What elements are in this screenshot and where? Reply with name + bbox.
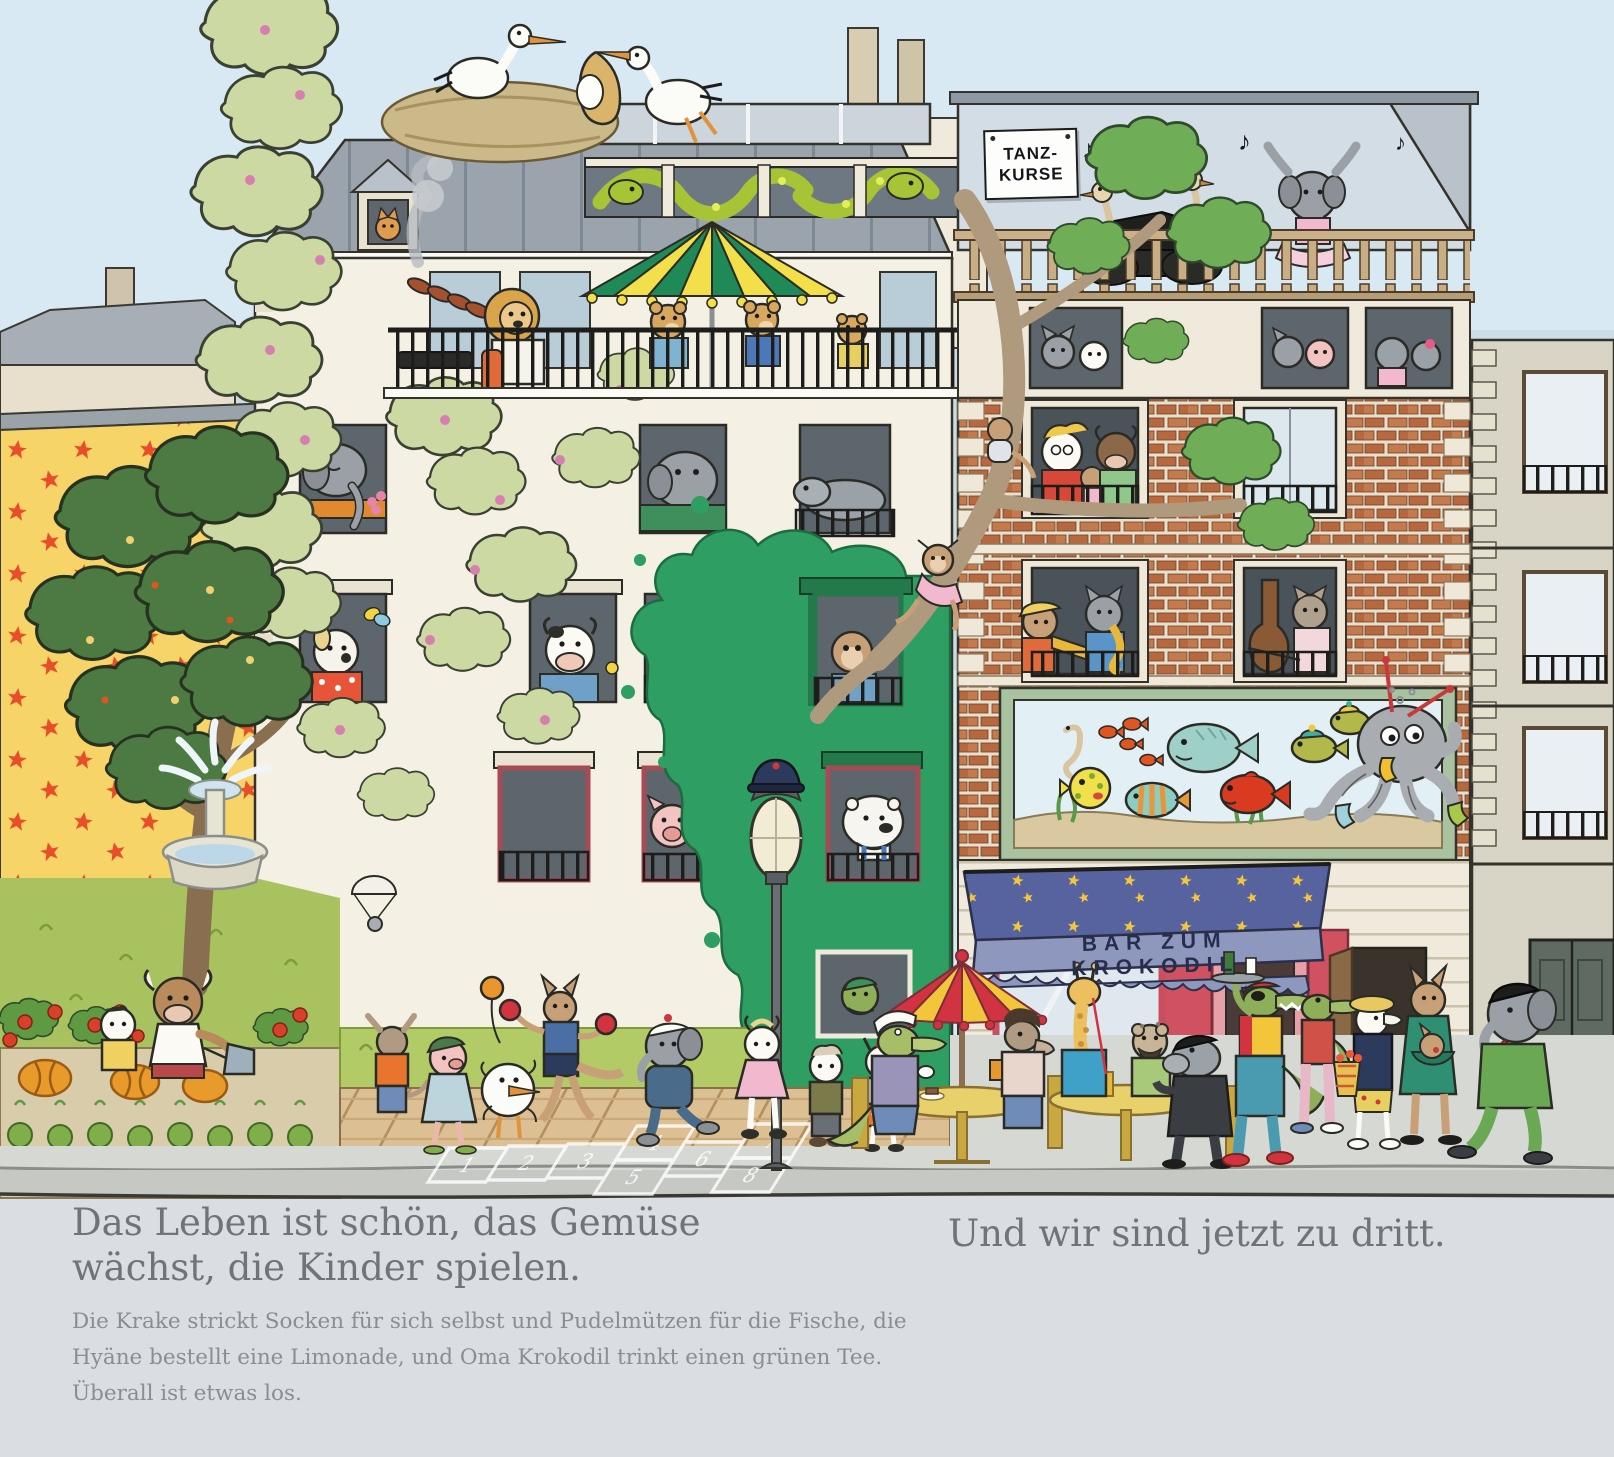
window-polar-bear (822, 752, 922, 880)
balcony-railing (388, 330, 965, 388)
snake-balcony (585, 158, 967, 217)
caption-body-line2: Hyäne bestellt eine Limonade, und Oma Kr… (72, 1340, 907, 1376)
overalls (1236, 1056, 1284, 1116)
window-cow-with-flower (524, 580, 622, 702)
caption-body: Die Krake strickt Socken für sich selbst… (72, 1304, 907, 1412)
caption-body-line1: Die Krake strickt Socken für sich selbst… (72, 1304, 907, 1340)
sign-line: TANZ- (1003, 142, 1058, 165)
sunglasses (1251, 991, 1265, 1001)
music-note: ♪ (1238, 126, 1251, 156)
sheep-dad (1042, 432, 1082, 472)
red-sneaker (1267, 1152, 1293, 1164)
far-right-windows (1524, 372, 1606, 838)
juice-glass (990, 1060, 1002, 1080)
lamb-boy (809, 1045, 845, 1147)
straw-hat (1350, 996, 1394, 1012)
window-wolf-kids (1030, 308, 1122, 388)
balcony-lying-hippo (794, 425, 894, 536)
window-wolf-parents (1262, 308, 1348, 388)
basement-window-crocodile (818, 952, 910, 1036)
bar-awning-text: BAR ZUM KROKODIL (999, 927, 1310, 984)
window-peeking-elephant (640, 425, 726, 533)
music-note: ♪ (1395, 130, 1406, 155)
caption-body-line3: Überall ist etwas los. (72, 1376, 907, 1412)
boxing-glove (596, 1014, 616, 1034)
window-musicians (1020, 560, 1148, 682)
book-page: ♪ ♫ ♪ ♪ (0, 0, 1614, 1457)
boxing-glove (500, 1000, 520, 1020)
shopping-basket (1334, 1050, 1362, 1096)
sign-line: KURSE (999, 163, 1064, 186)
cake (926, 1088, 938, 1094)
caption-heading-line2: wächst, die Kinder spielen. (72, 1245, 907, 1290)
window-cat-cellist (1234, 560, 1346, 682)
punch-ball (481, 977, 503, 999)
teacup (918, 1066, 934, 1078)
croc-snout (912, 1038, 946, 1052)
green-jacket (1478, 1044, 1552, 1108)
dance-school-sign: TANZ- KURSE (983, 128, 1079, 200)
window-hippos-pink (1366, 308, 1452, 388)
red-sneaker (1223, 1154, 1249, 1166)
window-vine-empty (494, 752, 594, 880)
caption-heading-line1: Das Leben ist schön, das Gemüse (72, 1200, 907, 1245)
caption-block: Das Leben ist schön, das Gemüse wächst, … (72, 1200, 907, 1413)
caption-right-text: Und wir sind jetzt zu dritt. (948, 1212, 1446, 1255)
